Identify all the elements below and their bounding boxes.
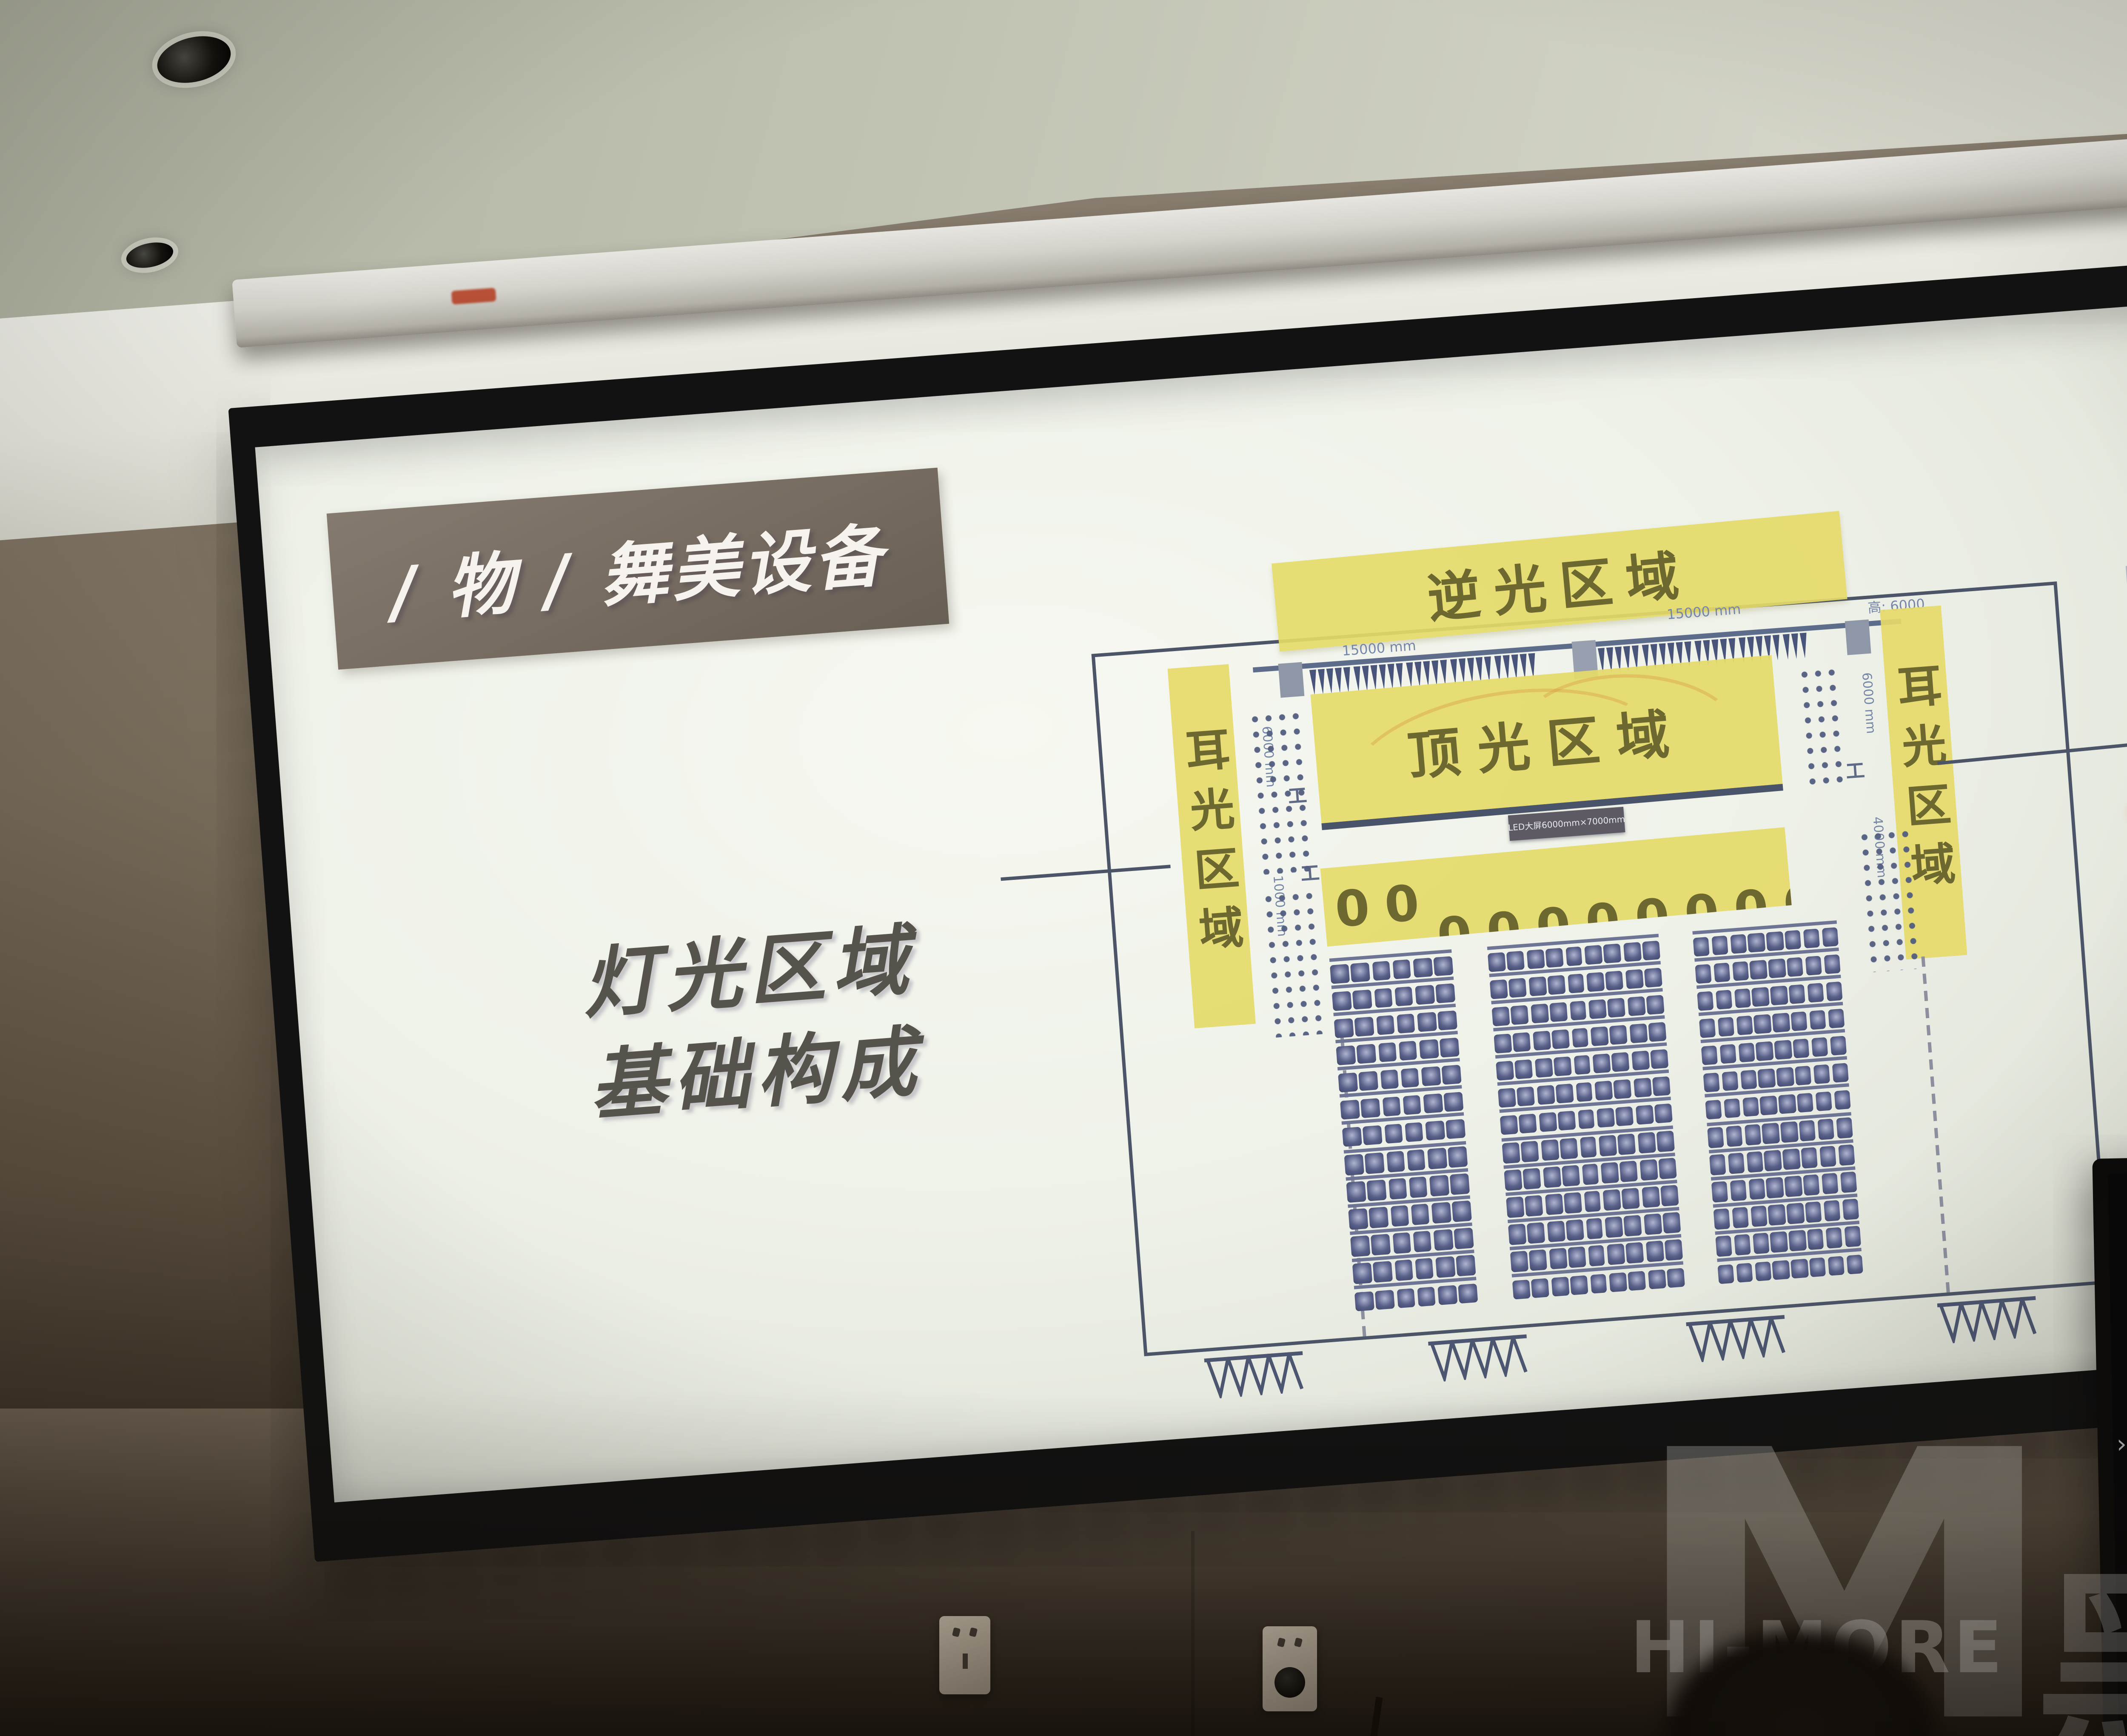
truss-end-block [1845, 620, 1871, 655]
photo-of-presentation-room: / 物 / 舞美设备 灯光区域 基础构成 逆光区域 15000 mm [0, 0, 2127, 1736]
wall-outlet [939, 1616, 990, 1694]
exit-mark [1428, 1335, 1530, 1383]
zone-backlight-label: 逆光区域 [1424, 531, 1695, 632]
led-screen-label: LED大屏6000mm×7000mm [1508, 814, 1625, 834]
truss-end-block [1278, 662, 1304, 698]
screen-brand-logo [451, 288, 496, 305]
slide-title-label: / 物 / 舞美设备 [387, 501, 888, 637]
whiteboard-canvas[interactable]: › ✕☰☁✎▱➤↶↷ ✓ [2108, 1164, 2127, 1736]
wall-outlet-with-plug [1263, 1626, 1317, 1711]
slide-heading: 灯光区域 基础构成 [579, 896, 1103, 1138]
seat-block [1692, 920, 1863, 1284]
seat-block [1487, 934, 1685, 1300]
wall-seam [1191, 1531, 1195, 1736]
light-fixture-cluster [1797, 664, 1850, 790]
exit-mark [1937, 1296, 2039, 1344]
exit-mark [1686, 1315, 1788, 1363]
light-fixture-cluster [1261, 888, 1330, 1038]
sidebar-toggle-icon[interactable]: › [2116, 1429, 2127, 1459]
faint-seat-numbers: 000000000000 [1320, 872, 1437, 947]
audience-seating [1329, 920, 1865, 1312]
light-fixture-cluster [1857, 826, 1919, 973]
light-fixture-cluster [1248, 708, 1317, 875]
screen-surface: / 物 / 舞美设备 灯光区域 基础构成 逆光区域 15000 mm [255, 304, 2127, 1503]
projection-screen: / 物 / 舞美设备 灯光区域 基础构成 逆光区域 15000 mm [228, 262, 2127, 1562]
exit-mark [1204, 1351, 1306, 1399]
slide-content: / 物 / 舞美设备 灯光区域 基础构成 逆光区域 15000 mm [255, 304, 2127, 1503]
slide-title-badge: / 物 / 舞美设备 [327, 468, 949, 670]
seat-block [1329, 949, 1478, 1311]
